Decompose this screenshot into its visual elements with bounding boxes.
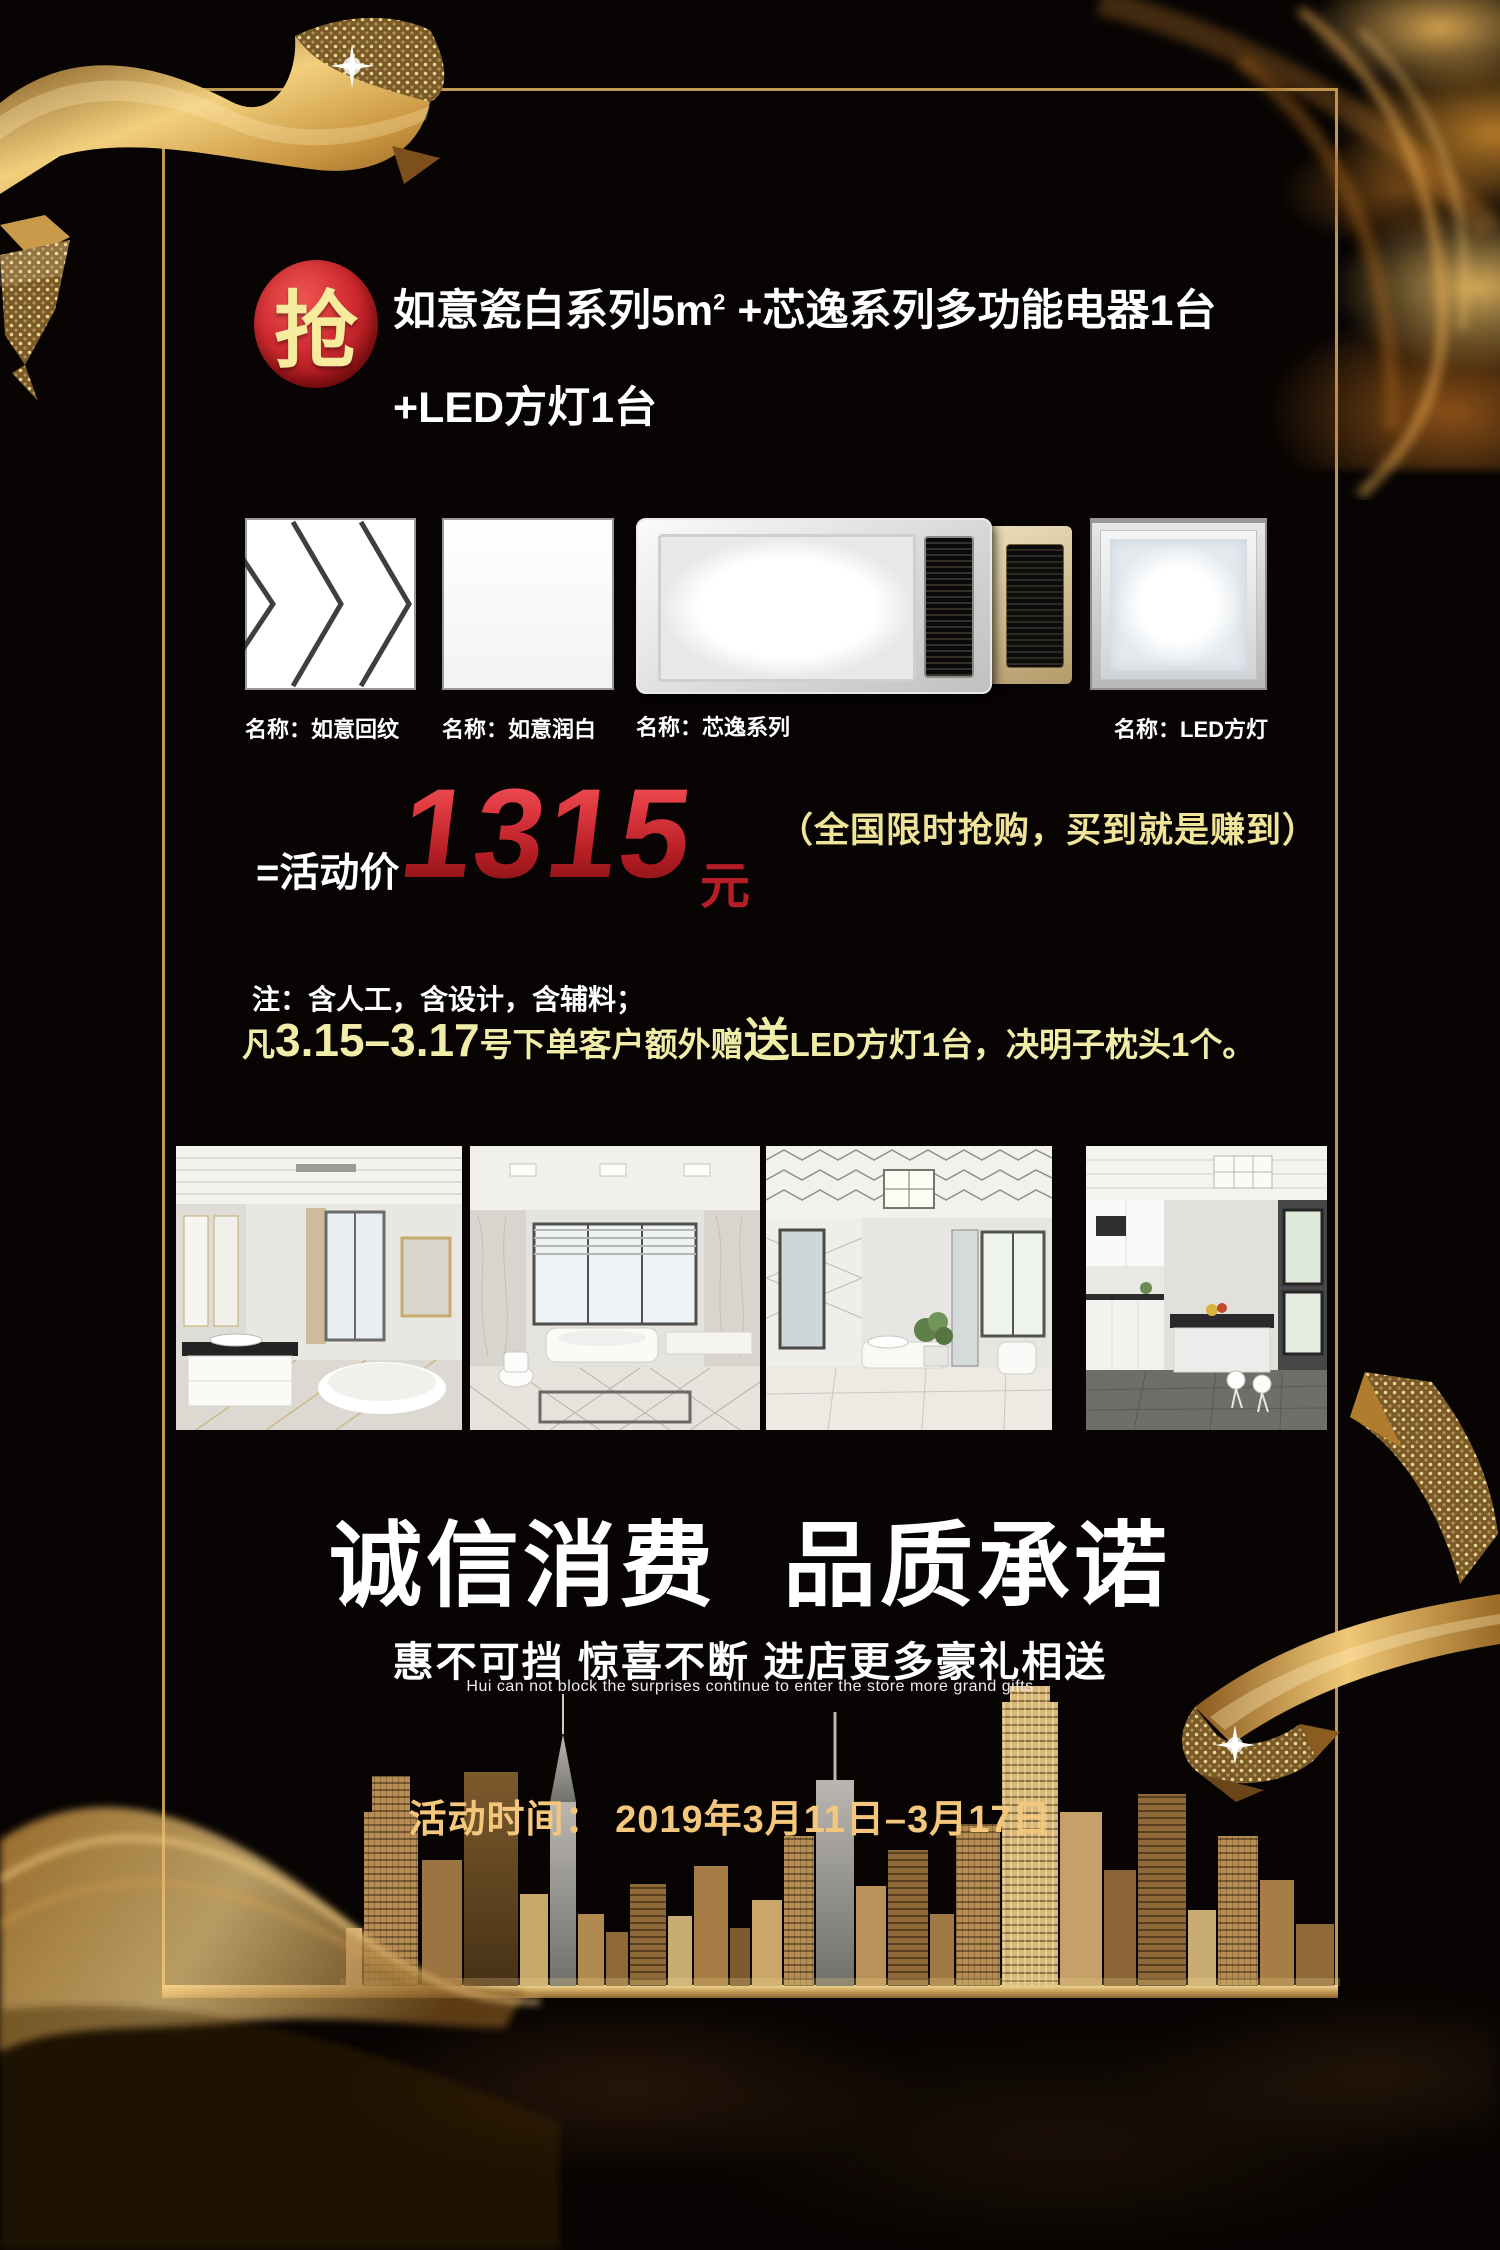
- white-tile-icon: [442, 518, 614, 690]
- photo-bathroom-3: [766, 1146, 1052, 1430]
- heater-grille-icon: [924, 536, 974, 678]
- photo-bathroom-2: [470, 1146, 760, 1430]
- heater-light-panel-icon: [658, 534, 916, 682]
- subtitle-english: Hui can not block the surprises continue…: [150, 1678, 1350, 1696]
- heater-white-panel-icon: [636, 518, 992, 694]
- product-image-xinyi-series: 名称：芯逸系列: [636, 516, 1072, 694]
- event-time: 活动时间： 2019年3月11日–3月17日: [130, 1788, 1330, 1843]
- note-gift-emphasis: 送: [744, 1014, 790, 1066]
- price-prefix: =活动价: [256, 840, 399, 898]
- grab-badge-label: 抢: [274, 264, 358, 385]
- product-label: 名称：如意回纹: [245, 712, 399, 744]
- price-amount: 1315: [394, 770, 700, 897]
- product-image-ruyi-runbai: 名称：如意润白: [442, 518, 614, 690]
- smoke-decoration: [250, 1980, 1500, 2250]
- slogan: 诚信消费品质承诺: [150, 1490, 1350, 1625]
- product-label: 名称：如意润白: [442, 712, 596, 744]
- product-image-ruyi-huiwen: 名称：如意回纹: [245, 518, 416, 690]
- heater-gold-panel-icon: [988, 526, 1072, 684]
- superscript-2: 2: [713, 290, 725, 315]
- gold-base-bar: [162, 1985, 1338, 1998]
- promo-poster: 抢 如意瓷白系列5m2 +芯逸系列多功能电器1台 +LED方灯1台 名称：如意回…: [0, 0, 1500, 2250]
- photo-bathroom-1: [176, 1146, 462, 1430]
- product-image-led-light: 名称：LED方灯: [1090, 518, 1267, 690]
- price-tagline: （全国限时抢购，买到就是赚到）: [778, 802, 1318, 853]
- slogan-part1: 诚信消费: [329, 1514, 717, 1618]
- note-dates: 3.15–3.17: [275, 1014, 480, 1066]
- product-label: 名称：LED方灯: [1114, 712, 1268, 744]
- slogan-part2: 品质承诺: [783, 1514, 1171, 1618]
- headline: 如意瓷白系列5m2 +芯逸系列多功能电器1台 +LED方灯1台: [393, 288, 1216, 433]
- chevron-tile-icon: [245, 518, 416, 690]
- grab-badge: 抢: [254, 260, 378, 388]
- price-unit: 元: [700, 846, 750, 918]
- product-label: 名称：芯逸系列: [636, 710, 790, 742]
- photo-kitchen: [1086, 1146, 1327, 1430]
- gold-sequin-ribbon-left-icon: [0, 215, 85, 410]
- headline-line2: +LED方灯1台: [393, 385, 1216, 432]
- headline-line1: 如意瓷白系列5m2 +芯逸系列多功能电器1台: [393, 288, 1216, 335]
- heater-grille-icon: [1006, 544, 1064, 668]
- note-line2: 凡3.15–3.17号下单客户额外赠送LED方灯1台，决明子枕头1个。: [242, 1004, 1255, 1070]
- led-panel-glow: [1110, 539, 1247, 671]
- led-panel-icon: [1090, 518, 1267, 690]
